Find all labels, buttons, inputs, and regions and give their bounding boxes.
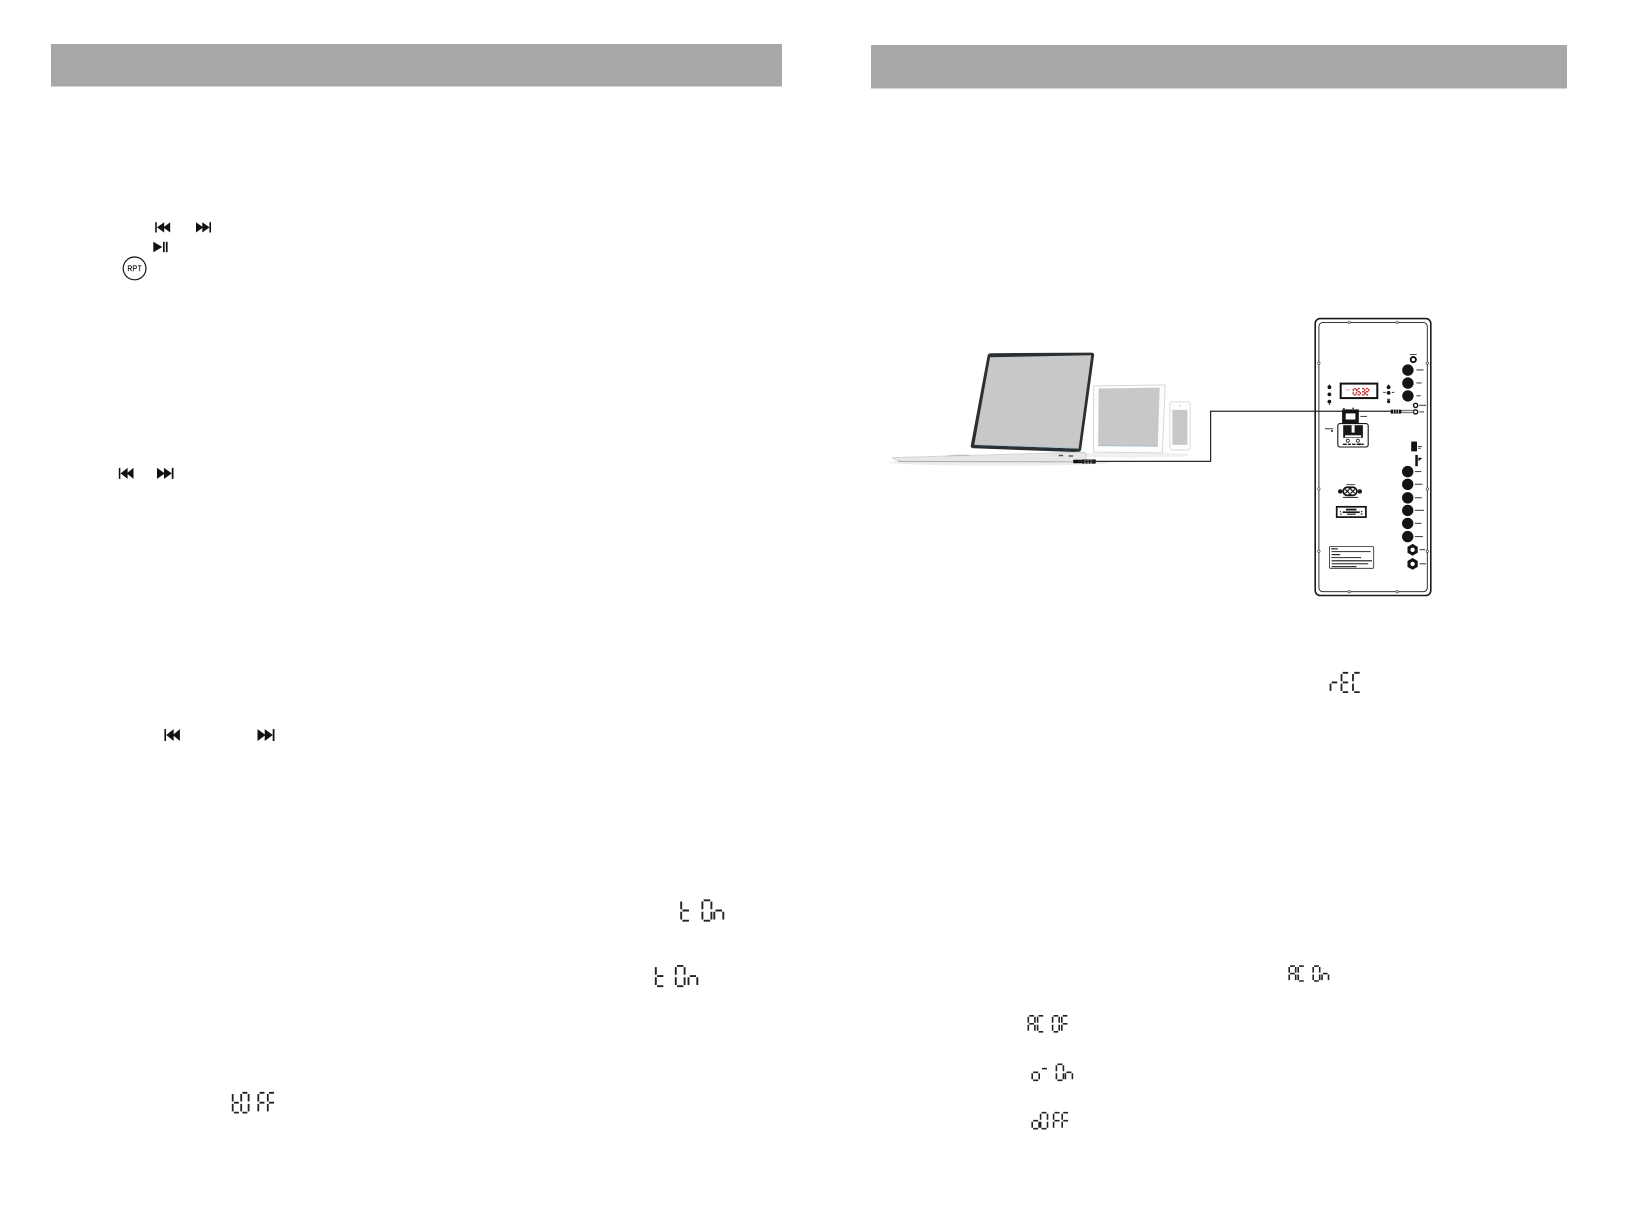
svg-text:ON: ON [1346,388,1350,392]
